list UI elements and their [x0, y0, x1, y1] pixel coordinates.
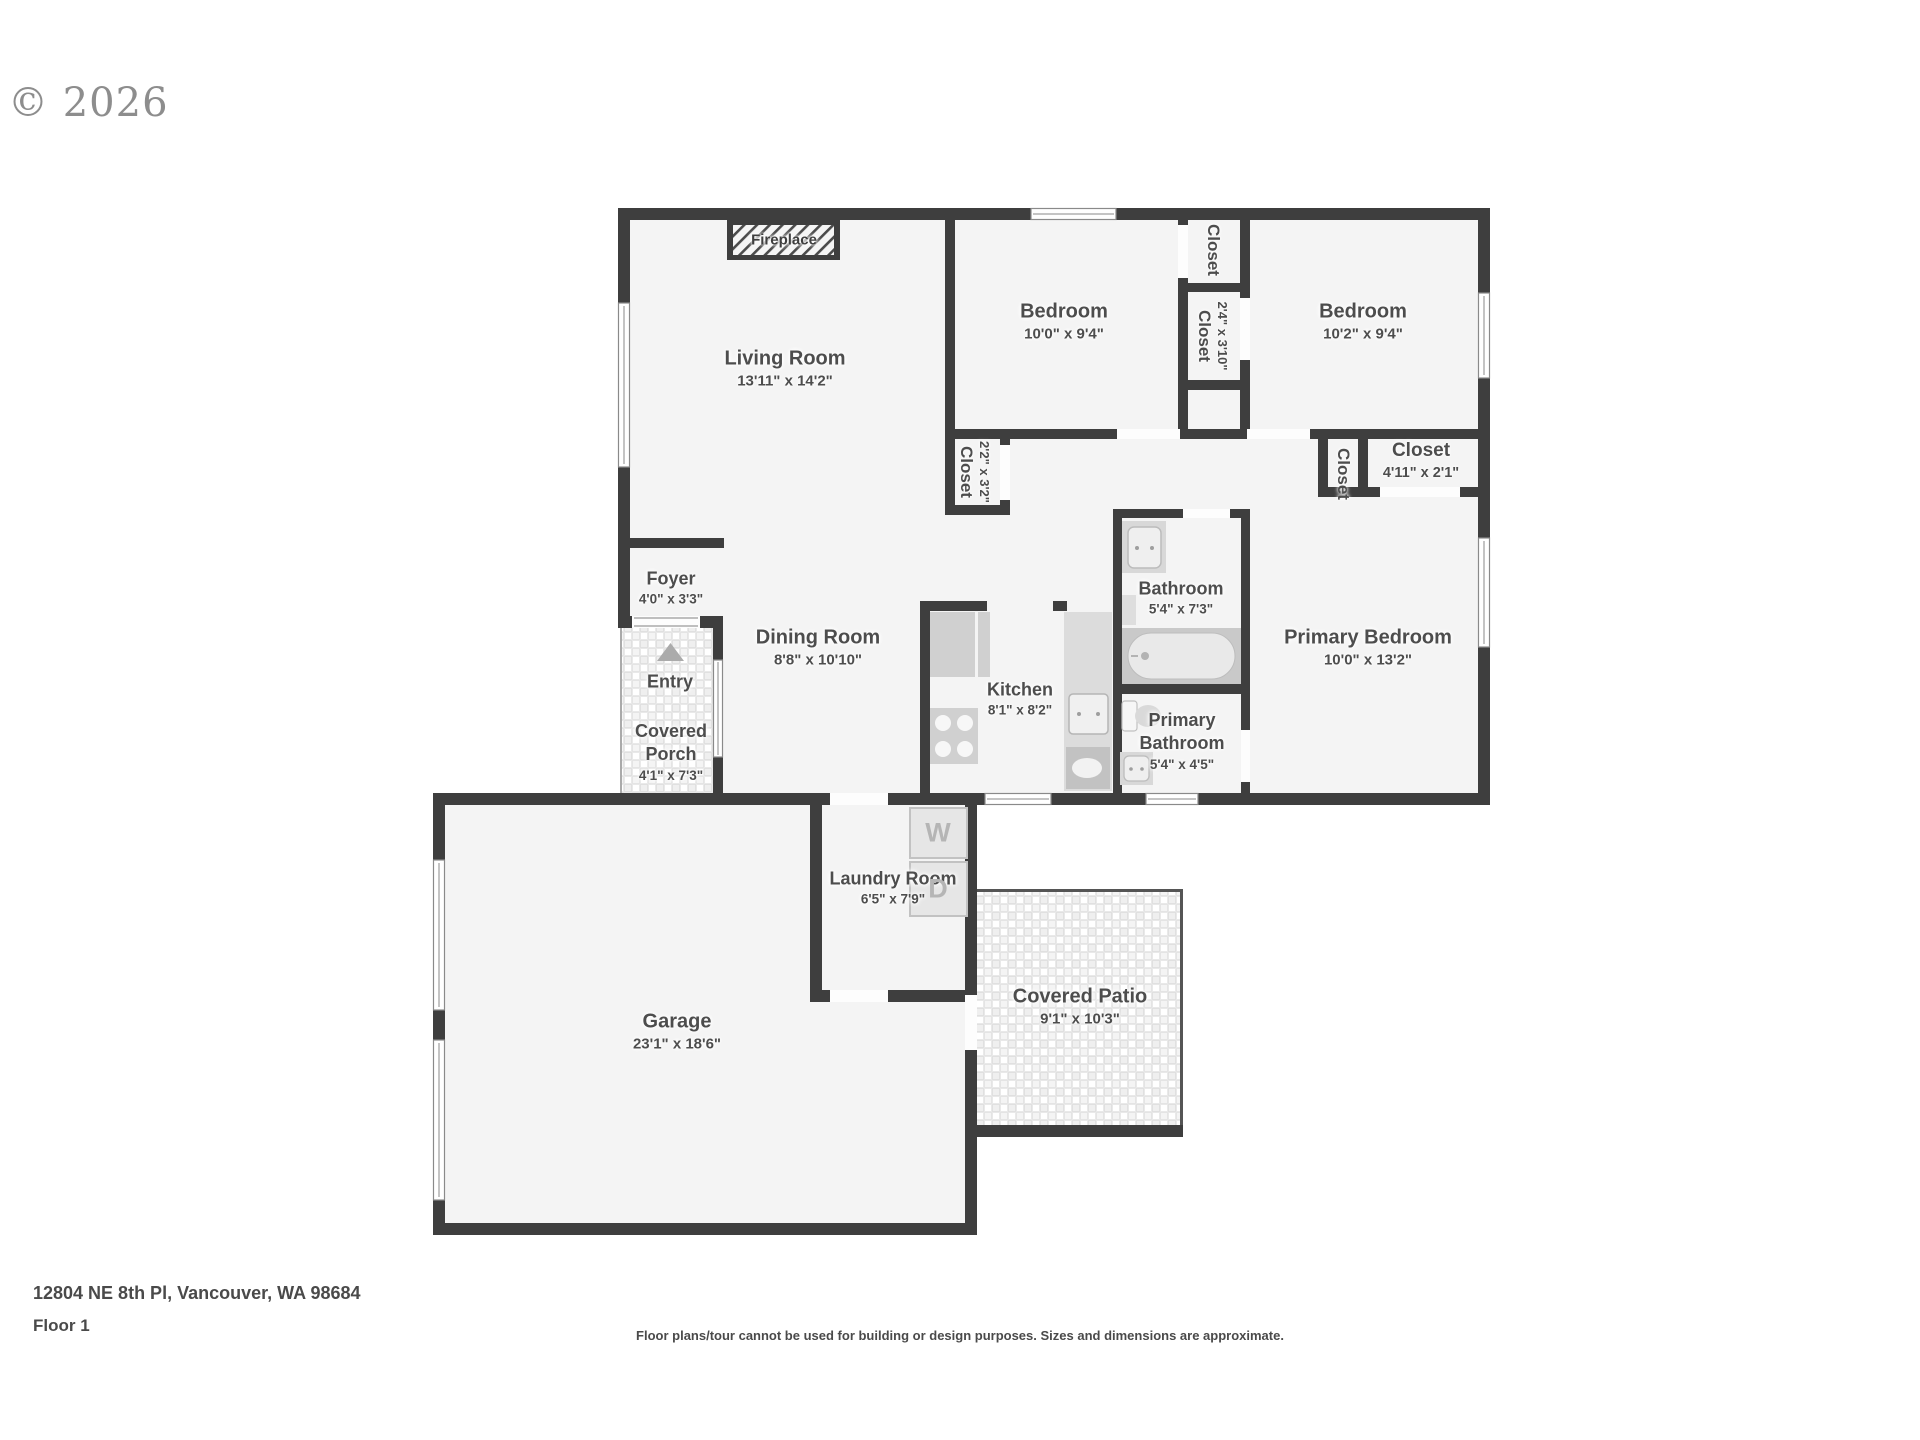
room-label-covered-porch: Covered Porch 4'1" x 7'3" — [621, 720, 721, 784]
room-label-covered-patio: Covered Patio 9'1" x 10'3" — [1013, 983, 1147, 1029]
closet-label-2-2: 2'2" x 3'2" Closet — [957, 441, 991, 503]
footer-floor-label: Floor 1 — [33, 1316, 90, 1336]
room-label-bedroom-1: Bedroom 10'0" x 9'4" — [1020, 298, 1108, 344]
floorplan-drawing — [0, 0, 1920, 1440]
stove-icon — [930, 708, 978, 764]
room-dims: 4'0" x 3'3" — [639, 591, 703, 609]
room-dims: 9'1" x 10'3" — [1013, 1009, 1147, 1029]
closet-name: Closet — [957, 446, 977, 498]
room-dims: 10'0" x 13'2" — [1284, 650, 1452, 670]
room-dims: 5'4" x 7'3" — [1139, 601, 1224, 619]
closet-label-2-4: 2'4" x 3'10" Closet — [1195, 301, 1229, 370]
washer-label: W — [925, 818, 950, 849]
room-label-primary-bathroom: Primary Bathroom 5'4" x 4'5" — [1117, 709, 1247, 773]
room-dims: 10'2" x 9'4" — [1319, 324, 1407, 344]
room-name: Bathroom — [1139, 578, 1224, 601]
closet-dims: 2'2" x 3'2" — [976, 441, 991, 503]
dryer-label: D — [928, 874, 948, 905]
room-dims: 8'8" x 10'10" — [756, 650, 880, 670]
bathroom-counter — [1122, 595, 1136, 625]
closet-name: Closet — [1383, 439, 1459, 464]
fireplace-label: Fireplace — [751, 232, 817, 249]
room-label-dining-room: Dining Room 8'8" x 10'10" — [756, 624, 880, 670]
room-name: Foyer — [639, 568, 703, 591]
footer-disclaimer: Floor plans/tour cannot be used for buil… — [636, 1328, 1284, 1343]
room-name: Primary Bedroom — [1284, 624, 1452, 650]
room-name: Garage — [633, 1008, 721, 1034]
room-label-entry: Entry — [647, 670, 693, 693]
room-dims: 10'0" x 9'4" — [1020, 324, 1108, 344]
room-name: Living Room — [724, 345, 845, 371]
kitchen-counter-left — [930, 612, 990, 677]
room-dims: 13'11" x 14'2" — [724, 371, 845, 391]
closet-name: Closet — [1333, 448, 1353, 500]
room-name: Primary Bathroom — [1117, 709, 1247, 756]
closet-name: Closet — [1195, 310, 1215, 362]
closet-label-top: Closet — [1203, 224, 1223, 276]
room-dims: 23'1" x 18'6" — [633, 1034, 721, 1054]
copyright-watermark: © 2026 — [8, 80, 169, 126]
closet-label-4-11: Closet 4'11" x 2'1" — [1383, 439, 1459, 483]
kitchen-sink-icon — [1069, 694, 1108, 734]
closet-name: Closet — [1203, 224, 1223, 276]
closet-dims: 4'11" x 2'1" — [1383, 464, 1459, 483]
room-name: Kitchen — [987, 679, 1053, 702]
room-label-primary-bedroom: Primary Bedroom 10'0" x 13'2" — [1284, 624, 1452, 670]
room-label-kitchen: Kitchen 8'1" x 8'2" — [987, 679, 1053, 720]
room-dims: 4'1" x 7'3" — [621, 767, 721, 785]
room-label-bedroom-2: Bedroom 10'2" x 9'4" — [1319, 298, 1407, 344]
room-name: Bedroom — [1020, 298, 1108, 324]
room-name: Entry — [647, 670, 693, 693]
floorplan-page: © 2026 Fireplace Living Room 13'11" x 14… — [0, 0, 1920, 1440]
bathroom-sink-icon — [1122, 521, 1166, 573]
room-name: Covered Porch — [621, 720, 721, 767]
room-name: Dining Room — [756, 624, 880, 650]
footer-address: 12804 NE 8th Pl, Vancouver, WA 98684 — [33, 1283, 361, 1304]
room-dims: 8'1" x 8'2" — [987, 702, 1053, 720]
closet-label-hall: Closet — [1333, 448, 1353, 500]
room-label-garage: Garage 23'1" x 18'6" — [633, 1008, 721, 1054]
room-name: Bedroom — [1319, 298, 1407, 324]
room-dims: 5'4" x 4'5" — [1117, 756, 1247, 774]
room-label-living-room: Living Room 13'11" x 14'2" — [724, 345, 845, 391]
room-label-foyer: Foyer 4'0" x 3'3" — [639, 568, 703, 609]
bathtub-icon — [1122, 628, 1241, 684]
room-name: Covered Patio — [1013, 983, 1147, 1009]
closet-dims: 2'4" x 3'10" — [1214, 301, 1229, 370]
kitchen-basin-icon — [1066, 747, 1110, 789]
room-label-bathroom: Bathroom 5'4" x 7'3" — [1139, 578, 1224, 619]
